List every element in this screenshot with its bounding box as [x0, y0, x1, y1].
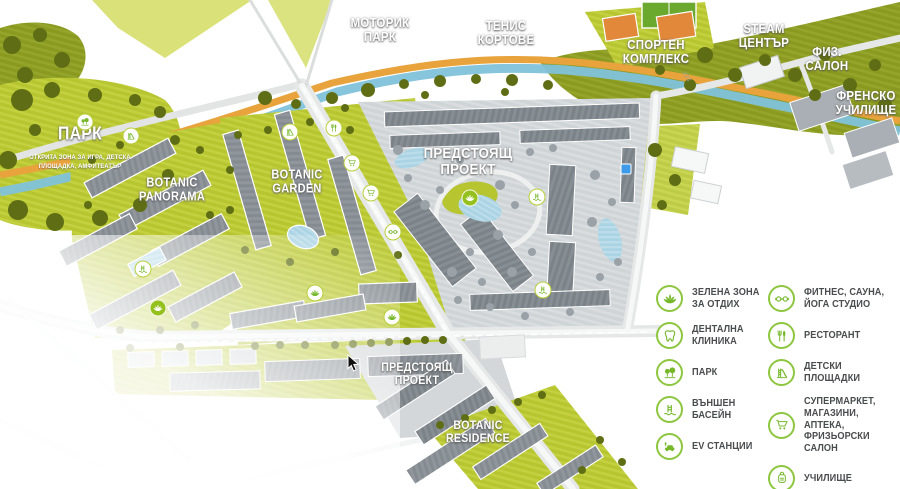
legend-column-1: ЗЕЛЕНА ЗОНА ЗА ОТДИХ ДЕНТАЛНА КЛИНИКА ПА…: [656, 285, 768, 460]
label-tenis-kortove: ТЕНИС КОРТОВЕ: [478, 19, 535, 47]
legend-item-playgrounds: ДЕТСКИ ПЛОЩАДКИ: [768, 359, 900, 386]
legend-item-park: ПАРК: [656, 359, 768, 386]
dumbbell-icon: [768, 285, 795, 312]
legend-label: ДЕТСКИ ПЛОЩАДКИ: [804, 361, 860, 385]
label-botanic-residence: BOTANIC RESIDENCE: [446, 419, 510, 445]
legend-item-school: УЧИЛИЩЕ: [768, 465, 900, 489]
lotus-icon: [307, 285, 324, 302]
ev-station-icon: [656, 433, 683, 460]
pool-ladder-icon: [529, 189, 546, 206]
legend-label: ФИТНЕС, САУНА, ЙОГА СТУДИО: [804, 287, 884, 311]
supermarket-cart-icon: [768, 412, 795, 439]
label-botanic-garden: BOTANIC GARDEN: [271, 169, 322, 196]
restaurant-icon: [326, 120, 343, 137]
legend-label: РЕСТОРАНТ: [804, 330, 860, 342]
label-sporten-kompleks: СПОРТЕН КОМПЛЕКС: [623, 38, 690, 66]
label-frensko-uchilishte: ФРЕНСКО УЧИЛИЩЕ: [836, 89, 897, 117]
legend-item-green-zone: ЗЕЛЕНА ЗОНА ЗА ОТДИХ: [656, 285, 768, 312]
legend-item-fitness: ФИТНЕС, САУНА, ЙОГА СТУДИО: [768, 285, 900, 312]
playground-slide-icon: [123, 128, 140, 145]
legend-item-dental-clinic: ДЕНТАЛНА КЛИНИКА: [656, 322, 768, 349]
legend-item-ev-stations: EV СТАНЦИИ: [656, 433, 768, 460]
legend-label: СУПЕРМАРКЕТ, МАГАЗИНИ, АПТЕКА, ФРИЗЬОРСК…: [804, 396, 892, 455]
playground-slide-icon: [768, 359, 795, 386]
lotus-icon: [656, 285, 683, 312]
playground-slide-icon: [282, 124, 299, 141]
legend-label: EV СТАНЦИИ: [692, 441, 752, 453]
legend-label: ВЪНШЕН БАСЕЙН: [692, 398, 735, 422]
legend-item-outdoor-pool: ВЪНШЕН БАСЕЙН: [656, 396, 768, 423]
park-trees-icon: [77, 114, 94, 131]
legend-column-2: ФИТНЕС, САУНА, ЙОГА СТУДИО РЕСТОРАНТ ДЕТ…: [768, 285, 900, 489]
lotus-icon: [384, 309, 401, 326]
legend-label: ДЕНТАЛНА КЛИНИКА: [692, 324, 744, 348]
dumbbell-icon: [385, 224, 402, 241]
lotus-icon: [150, 300, 167, 317]
label-motorik-park: МОТОРИК ПАРК: [351, 16, 410, 44]
school-backpack-icon: [768, 465, 795, 489]
legend-label: УЧИЛИЩЕ: [804, 473, 852, 485]
legend-item-restaurant: РЕСТОРАНТ: [768, 322, 900, 349]
blue-location-marker: [621, 164, 632, 175]
legend-label: ЗЕЛЕНА ЗОНА ЗА ОТДИХ: [692, 287, 759, 311]
pool-ladder-icon: [535, 282, 552, 299]
tooth-icon: [656, 322, 683, 349]
label-steam-centar: STEAM ЦЕНТЪР: [739, 22, 789, 50]
label-botanic-panorama: BOTANIC PANORAMA: [139, 177, 205, 204]
supermarket-cart-icon: [344, 155, 361, 172]
park-trees-icon: [656, 359, 683, 386]
legend-item-supermarket: СУПЕРМАРКЕТ, МАГАЗИНИ, АПТЕКА, ФРИЗЬОРСК…: [768, 396, 900, 455]
supermarket-cart-icon: [363, 185, 380, 202]
masterplan-map[interactable]: ЗЕЛЕНА ЗОНА ЗА ОТДИХ ДЕНТАЛНА КЛИНИКА ПА…: [0, 0, 900, 489]
label-predstoyasht-proekt: ПРЕДСТОЯЩ ПРОЕКТ: [424, 146, 513, 178]
map-fade-bottom: [0, 400, 350, 489]
lotus-icon: [462, 190, 479, 207]
restaurant-icon: [768, 322, 795, 349]
legend-label: ПАРК: [692, 367, 717, 379]
pool-ladder-icon: [656, 396, 683, 423]
pool-ladder-icon: [135, 261, 152, 278]
label-fiz-salon: ФИЗ. САЛОН: [806, 45, 849, 73]
label-park-subtitle: ОТКРИТА ЗОНА ЗА ИГРА, ДЕТСКА ПЛОЩАДКА, А…: [29, 154, 130, 172]
label-predstoyasht-proekt-south: ПРЕДСТОЯЩ ПРОЕКТ: [381, 361, 453, 387]
